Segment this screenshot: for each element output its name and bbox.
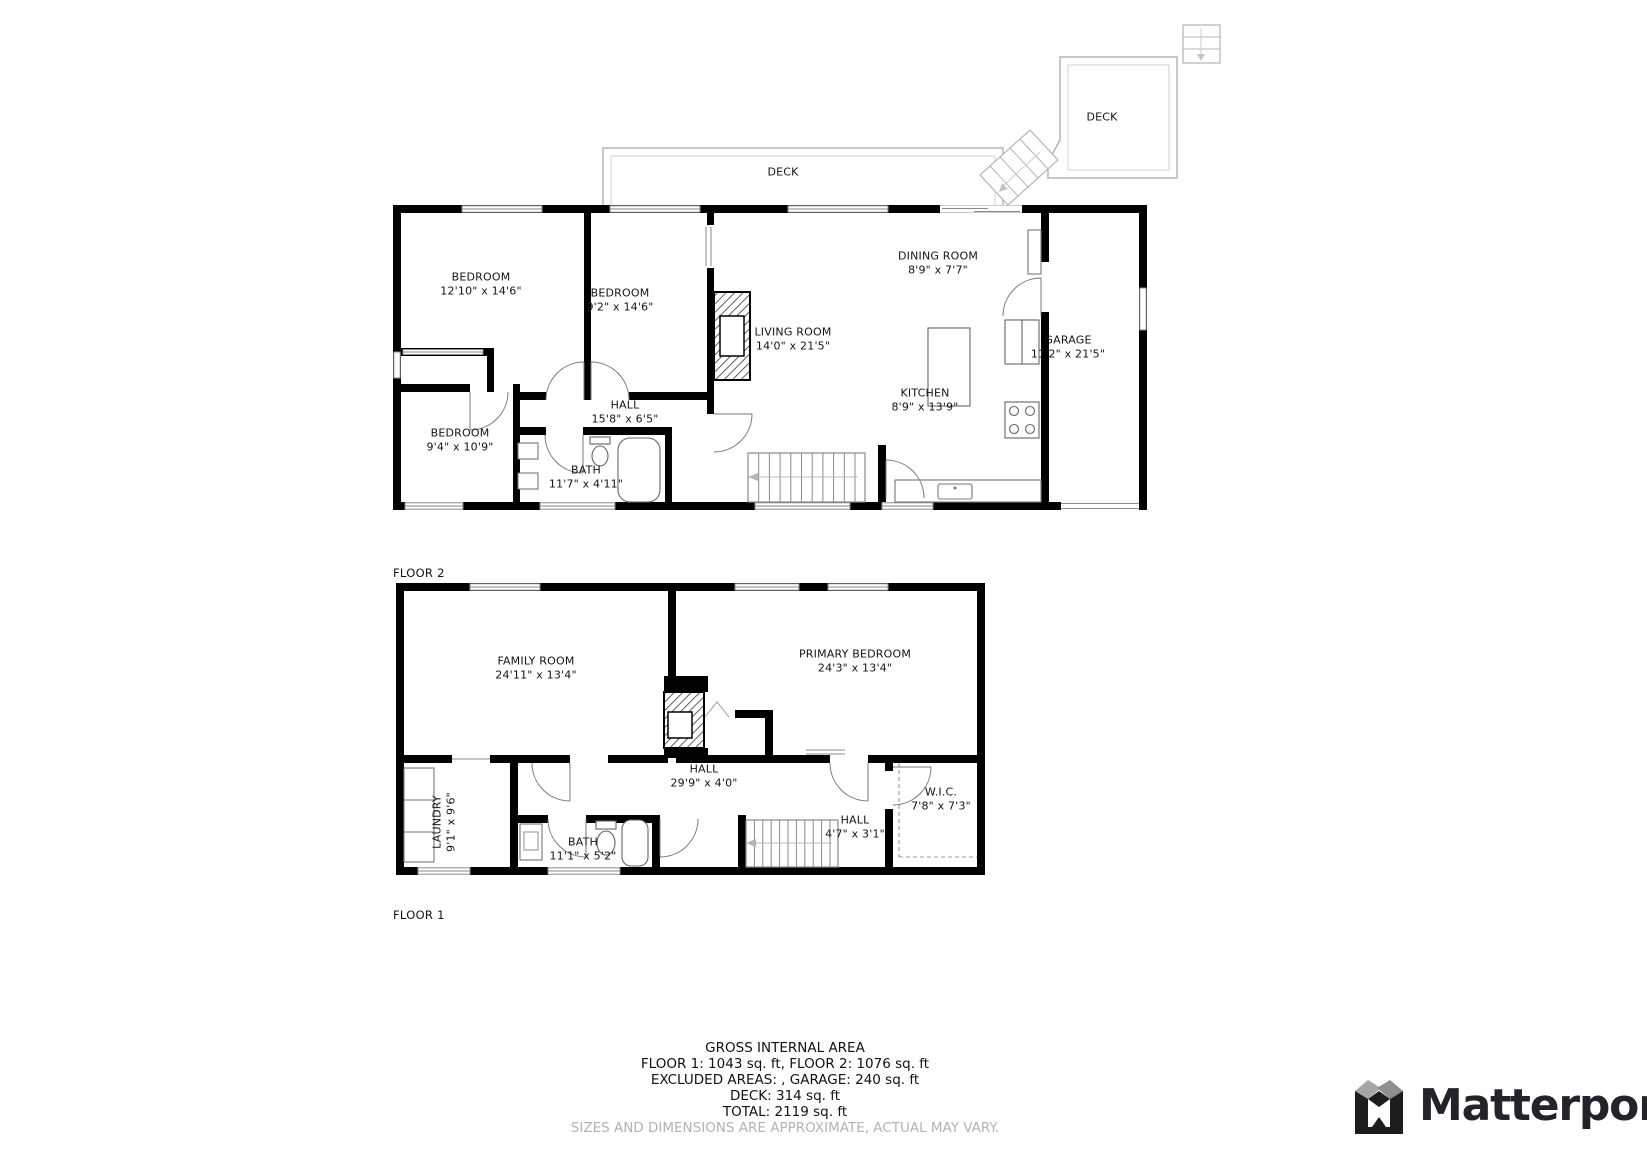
- room-name: BEDROOM: [440, 271, 521, 285]
- area-deck-line: DECK: 314 sq. ft: [571, 1088, 999, 1104]
- deck-long-label: DECK: [767, 165, 798, 179]
- floor2-stairs: [748, 453, 865, 502]
- room-name: LIVING ROOM: [754, 326, 831, 340]
- room-label-primary-bedroom: PRIMARY BEDROOM 24'3" x 13'4": [799, 648, 911, 675]
- room-label-bath-f1: BATH 11'1" x 5'2": [549, 836, 616, 863]
- room-name: HALL: [591, 399, 658, 413]
- room-name: HALL: [670, 763, 737, 777]
- matterport-logo-icon: [1352, 1076, 1406, 1134]
- room-name: PRIMARY BEDROOM: [799, 648, 911, 662]
- room-dims: 15'8" x 6'5": [591, 412, 658, 426]
- room-name: GARAGE: [1031, 334, 1105, 348]
- floor2-fireplace: [714, 292, 750, 380]
- room-name: BATH: [549, 836, 616, 850]
- room-dims: 11'1" x 5'2": [549, 849, 616, 863]
- room-name: W.I.C.: [911, 786, 971, 800]
- room-label-laundry: LAUNDRY 9'1" x 9'6": [431, 792, 458, 852]
- room-label-dining-room: DINING ROOM 8'9" x 7'7": [898, 250, 978, 277]
- room-dims: 29'9" x 4'0": [670, 776, 737, 790]
- room-label-family-room: FAMILY ROOM 24'11" x 13'4": [495, 655, 576, 682]
- disclaimer-text: SIZES AND DIMENSIONS ARE APPROXIMATE, AC…: [571, 1120, 999, 1136]
- deck-long-outline: [603, 148, 1003, 208]
- room-label-bath-f2: BATH 11'7" x 4'11": [549, 464, 623, 491]
- room-label-garage: GARAGE 11'2" x 21'5": [1031, 334, 1105, 361]
- room-dims: 8'9" x 13'9": [891, 400, 958, 414]
- floorplan-drawing: [0, 0, 1647, 1164]
- room-label-kitchen: KITCHEN 8'9" x 13'9": [891, 387, 958, 414]
- floor1-tag: FLOOR 1: [393, 908, 445, 922]
- room-name: LAUNDRY: [431, 792, 445, 852]
- room-dims: 11'2" x 21'5": [1031, 347, 1105, 361]
- room-dims: 9'2" x 14'6": [586, 300, 653, 314]
- area-summary-title: GROSS INTERNAL AREA: [571, 1040, 999, 1056]
- room-dims: 24'3" x 13'4": [799, 661, 911, 675]
- room-name: FAMILY ROOM: [495, 655, 576, 669]
- room-name: DECK: [767, 165, 798, 179]
- room-label-hall-f2: HALL 15'8" x 6'5": [591, 399, 658, 426]
- room-label-bedroom-2: BEDROOM 9'2" x 14'6": [586, 287, 653, 314]
- room-name: BEDROOM: [586, 287, 653, 301]
- room-dims: 9'4" x 10'9": [426, 440, 493, 454]
- room-name: KITCHEN: [891, 387, 958, 401]
- floorplan-page: BEDROOM 12'10" x 14'6" BEDROOM 9'2" x 14…: [0, 0, 1647, 1164]
- deck-mini-stairs: [1183, 25, 1220, 63]
- room-dims: 9'1" x 9'6": [444, 792, 458, 852]
- room-name: HALL: [825, 814, 885, 828]
- room-dims: 14'0" x 21'5": [754, 339, 831, 353]
- room-label-hall2-f1: HALL 4'7" x 3'1": [825, 814, 885, 841]
- area-summary: GROSS INTERNAL AREA FLOOR 1: 1043 sq. ft…: [571, 1040, 999, 1136]
- area-total-line: TOTAL: 2119 sq. ft: [571, 1104, 999, 1120]
- area-excluded-line: EXCLUDED AREAS: , GARAGE: 240 sq. ft: [571, 1072, 999, 1088]
- room-name: DINING ROOM: [898, 250, 978, 264]
- room-dims: 8'9" x 7'7": [898, 263, 978, 277]
- room-name: BEDROOM: [426, 427, 493, 441]
- room-label-bedroom-3: BEDROOM 9'4" x 10'9": [426, 427, 493, 454]
- room-dims: 24'11" x 13'4": [495, 668, 576, 682]
- deck-upper-label: DECK: [1086, 110, 1117, 124]
- room-name: DECK: [1086, 110, 1117, 124]
- room-name: BATH: [549, 464, 623, 478]
- room-label-living-room: LIVING ROOM 14'0" x 21'5": [754, 326, 831, 353]
- floor2-tag: FLOOR 2: [393, 566, 445, 580]
- room-label-wic: W.I.C. 7'8" x 7'3": [911, 786, 971, 813]
- room-label-hall-f1: HALL 29'9" x 4'0": [670, 763, 737, 790]
- room-dims: 7'8" x 7'3": [911, 799, 971, 813]
- matterport-logo: Matterport: [1352, 1076, 1647, 1134]
- area-floors-line: FLOOR 1: 1043 sq. ft, FLOOR 2: 1076 sq. …: [571, 1056, 999, 1072]
- room-label-bedroom-1: BEDROOM 12'10" x 14'6": [440, 271, 521, 298]
- room-dims: 4'7" x 3'1": [825, 827, 885, 841]
- matterport-wordmark: Matterport: [1419, 1080, 1647, 1131]
- floor1-fireplace: [664, 692, 729, 748]
- room-dims: 11'7" x 4'11": [549, 477, 623, 491]
- room-dims: 12'10" x 14'6": [440, 284, 521, 298]
